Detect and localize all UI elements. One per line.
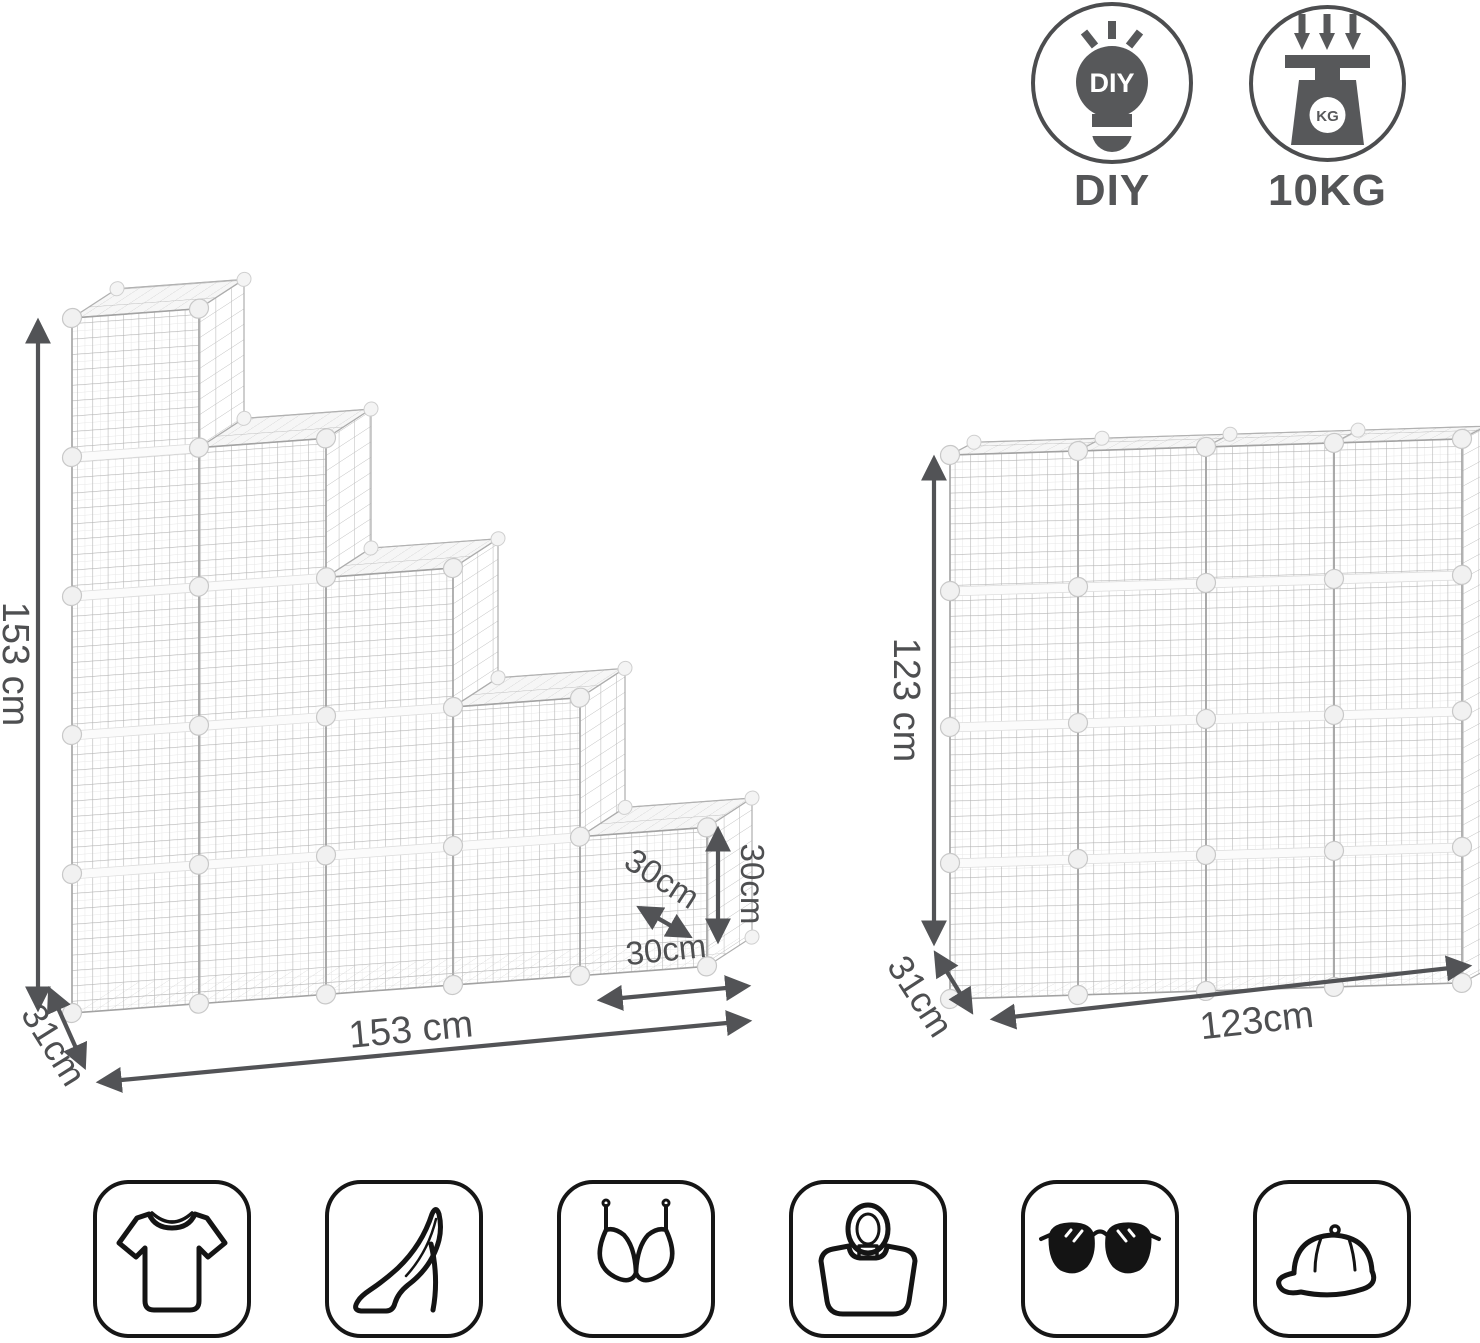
cube-height-label: 30cm — [734, 844, 771, 925]
weight-scale-icon: KG — [1253, 9, 1402, 158]
load-capacity-badge: KG — [1249, 5, 1406, 162]
tshirt-icon — [97, 1184, 247, 1334]
item-box-heel — [325, 1180, 483, 1338]
grid-shelf-illustration — [941, 419, 1480, 1009]
staircase-front-cubes — [72, 271, 707, 1013]
handbag-icon — [793, 1184, 943, 1334]
high-heel-icon — [329, 1184, 479, 1334]
staircase-shelf-illustration — [63, 235, 760, 1024]
diy-bulb-icon: DIY — [1035, 6, 1189, 160]
diy-badge: DIY — [1031, 2, 1193, 164]
product-diagram: 153 cm 31cm 153 cm 30cm 30cm 30cm 123 cm… — [0, 0, 1480, 1343]
sunglasses-icon — [1025, 1184, 1175, 1334]
right-width-label: 123cm — [1198, 994, 1316, 1048]
item-box-bra — [557, 1180, 715, 1338]
load-capacity-label: 10KG — [1249, 166, 1406, 216]
diy-bulb-text: DIY — [1089, 68, 1134, 98]
cube-width-arrow — [601, 986, 747, 1000]
item-box-handbag — [789, 1180, 947, 1338]
diy-badge-label: DIY — [1031, 166, 1193, 216]
item-box-tshirt — [93, 1180, 251, 1338]
left-height-label: 153 cm — [0, 602, 36, 727]
scale-kg-text: KG — [1316, 108, 1339, 125]
bra-icon — [561, 1184, 711, 1334]
item-box-sunglasses — [1021, 1180, 1179, 1338]
cap-icon — [1257, 1184, 1407, 1334]
item-box-cap — [1253, 1180, 1411, 1338]
right-height-label: 123 cm — [885, 638, 927, 763]
